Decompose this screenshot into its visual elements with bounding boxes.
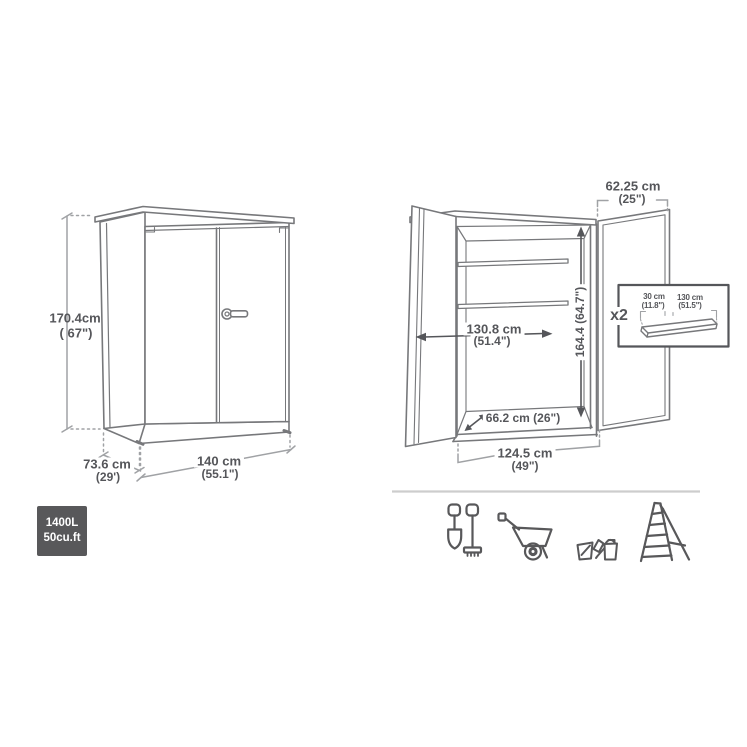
closed-width-cm-label: 140 cm <box>194 455 244 468</box>
capacity-liters: 1400L <box>46 518 79 530</box>
closed-cabinet-drawing <box>95 207 294 445</box>
closed-height-in-label: ( 67") <box>60 327 93 340</box>
shelf-width-in-label: (51.5") <box>678 302 701 310</box>
capacity-cubic-feet: 50cu.ft <box>43 533 80 545</box>
closed-depth-in-label: (29') <box>93 471 123 483</box>
shelf-quantity-label: x2 <box>608 307 630 325</box>
opening-width-in-label: (49") <box>508 460 541 472</box>
garden-tools-icon <box>448 505 481 557</box>
closed-depth-cm-label: 73.6 cm <box>80 458 134 471</box>
watering-can-icon <box>578 540 618 560</box>
capacity-badge: 1400L 50cu.ft <box>37 506 87 556</box>
diagram-canvas <box>0 0 747 747</box>
door-width-cm-label: 62.25 cm <box>606 180 661 193</box>
shelf-depth-in-label: (11.8") <box>642 302 665 310</box>
shelf-inset-drawing <box>619 285 729 347</box>
closed-width-in-label: (55.1") <box>198 468 241 480</box>
door-width-in-label: (25") <box>618 193 645 205</box>
wheelbarrow-icon <box>499 514 552 560</box>
dimension-diagram: 170.4cm ( 67") 73.6 cm (29') 140 cm (55.… <box>0 0 747 747</box>
interior-height-label: 164.4 (64.7") <box>574 284 586 360</box>
interior-width-in-label: (51.4") <box>470 335 513 347</box>
ladder-icon <box>641 503 689 561</box>
opening-width-cm-label: 124.5 cm <box>495 447 556 460</box>
shelf-depth-cm-label: 30 cm <box>643 293 665 301</box>
interior-depth-label: 66.2 cm (26") <box>483 412 563 424</box>
closed-height-cm-label: 170.4cm <box>49 312 100 325</box>
